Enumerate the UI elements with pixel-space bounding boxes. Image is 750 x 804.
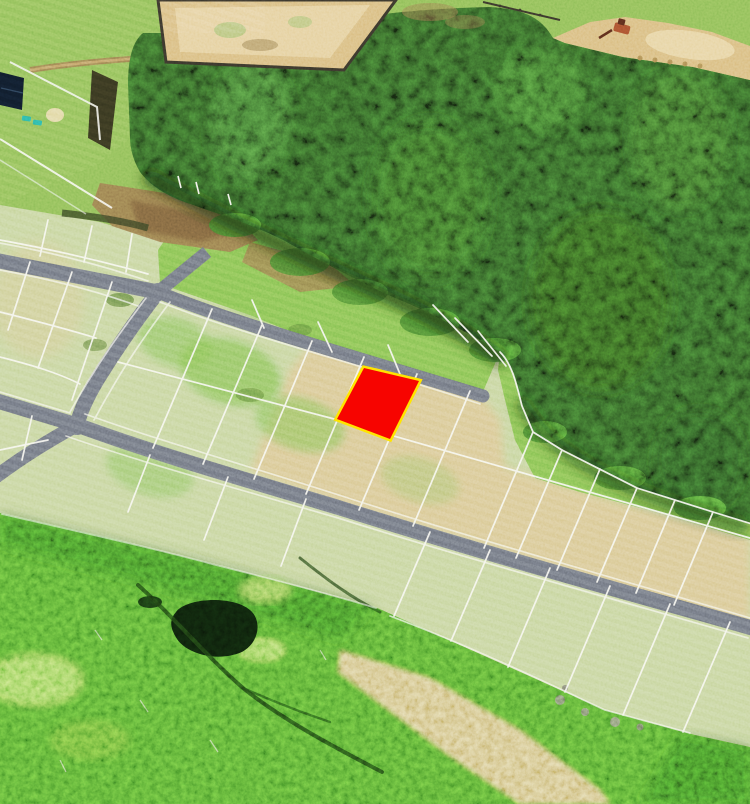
aerial-photo-canvas bbox=[0, 0, 750, 804]
aerial-scene bbox=[0, 0, 750, 804]
